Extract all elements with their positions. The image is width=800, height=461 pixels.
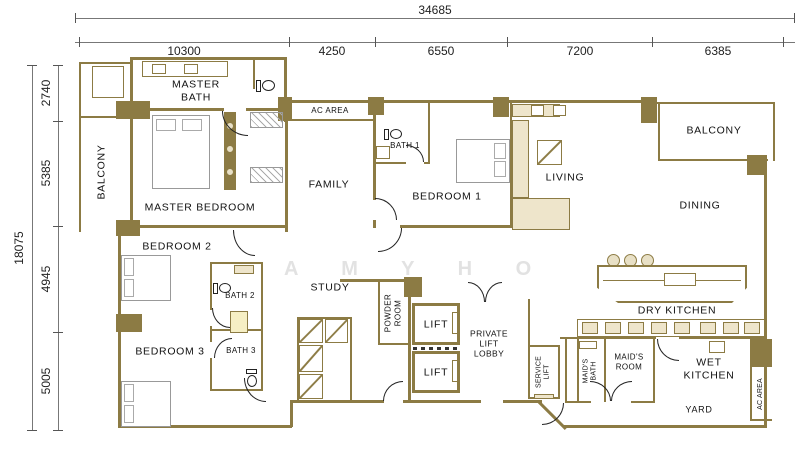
dim-tick (289, 37, 290, 47)
room-label-dry-kitchen: DRY KITCHEN (638, 305, 717, 318)
dim-top-total: 34685 (418, 3, 451, 17)
wall-segment (79, 62, 132, 64)
dim-tick (507, 37, 508, 47)
dim-tick (53, 121, 63, 122)
counter-appliance (582, 322, 598, 334)
dim-tick (652, 37, 653, 47)
room-label-ac-area-top: AC AREA (311, 106, 348, 116)
column-block (750, 339, 772, 367)
pillow (124, 405, 134, 423)
room-label-balcony-left: BALCONY (96, 144, 109, 199)
column-block (493, 97, 509, 117)
room-label-powder-room: POWDER ROOM (383, 294, 402, 332)
wall-segment (118, 225, 288, 228)
balcony-planter (92, 66, 124, 98)
closet-shelf (250, 167, 283, 183)
living-sofa (512, 198, 570, 230)
lift-lower-door (452, 360, 458, 382)
wall-segment (750, 419, 772, 421)
wall-segment (750, 367, 752, 421)
toilet-tank (384, 129, 389, 140)
wall-segment (210, 326, 212, 342)
lift-upper-door (452, 312, 458, 334)
wall-segment (428, 100, 430, 164)
toilet-tank (246, 369, 257, 374)
dim-tick (53, 332, 63, 333)
dim-top-seg-2: 6550 (428, 44, 455, 58)
door-arc-wet-kitchen (657, 339, 679, 361)
door-arc-bath2 (212, 308, 230, 328)
room-label-bath2: BATH 2 (225, 291, 255, 301)
wall-segment (655, 102, 775, 104)
dim-left-seg-0: 2740 (39, 80, 53, 107)
toilet-tank (256, 80, 261, 92)
wall-segment (528, 299, 530, 346)
counter-appliance (628, 322, 644, 334)
door-arc-bedroom2 (233, 230, 255, 256)
door-arc-bedroom3 (244, 378, 266, 402)
closet-shelf (250, 112, 283, 128)
dim-tick (53, 65, 63, 66)
toilet-tank (213, 283, 218, 294)
wardrobe-hanger (226, 168, 234, 176)
pillow (494, 161, 506, 177)
pillow (124, 279, 134, 297)
room-label-master-bedroom: MASTER BEDROOM (145, 202, 256, 215)
dim-tick (375, 37, 376, 47)
wall-segment (290, 400, 384, 403)
dim-top-seg-3: 7200 (567, 44, 594, 58)
dim-line-top-total (75, 18, 795, 19)
room-label-master-bath: MASTER BATH (172, 78, 220, 103)
sink-basin (376, 146, 390, 159)
dim-line-left-total (32, 65, 33, 431)
wall-segment (253, 57, 255, 89)
wall-segment (631, 401, 655, 403)
wall-segment (285, 119, 288, 232)
counter-appliance (723, 322, 739, 334)
room-label-service-lift: SERVICE LIFT (536, 356, 553, 388)
room-label-maids-room: MAID'S ROOM (614, 352, 643, 371)
dim-tick (27, 430, 37, 431)
pillow (156, 119, 176, 131)
toilet-bowl (262, 80, 275, 91)
dim-line-top-segments (75, 42, 795, 43)
room-label-bedroom1: BEDROOM 1 (412, 191, 481, 204)
room-label-ac-area-right: AC AREA (757, 378, 765, 410)
room-label-family: FAMILY (309, 179, 350, 192)
room-label-bath3: BATH 3 (226, 346, 256, 356)
wall-segment (130, 57, 286, 60)
dim-top-seg-0: 10300 (167, 44, 200, 58)
duct-shaft (230, 311, 248, 333)
room-label-lift-upper: LIFT (424, 319, 448, 332)
maids-bath-sink (579, 341, 597, 349)
wardrobe-hanger (226, 145, 234, 153)
wall-segment (408, 279, 411, 402)
wall-segment (400, 225, 512, 228)
wall-segment (210, 262, 263, 264)
wall-segment (565, 337, 567, 403)
room-label-private-lift-lobby: PRIVATE LIFT LOBBY (470, 329, 508, 360)
dim-top-seg-4: 6385 (705, 44, 732, 58)
toilet-bowl (390, 129, 402, 139)
hall-closet (299, 374, 323, 399)
wall-segment (378, 279, 380, 345)
floor-plan: 34685 10300 4250 6550 7200 6385 18075 27… (0, 0, 800, 461)
dim-tick (53, 430, 63, 431)
dim-left-seg-1: 5385 (39, 160, 53, 187)
room-label-maids-bath: MAID'S BATH (583, 359, 600, 384)
room-label-bedroom2: BEDROOM 2 (142, 241, 211, 254)
door-arc-lobby-left (468, 282, 485, 302)
wet-kitchen-sink (709, 341, 725, 353)
wall-segment (210, 262, 212, 310)
wall-segment (503, 400, 542, 403)
service-lift-sill (534, 394, 554, 399)
column-block (116, 220, 140, 236)
dim-line-left-segments (58, 65, 59, 431)
room-label-study: STUDY (310, 282, 349, 295)
column-block (116, 314, 142, 332)
wall-segment (658, 102, 660, 161)
room-label-dining: DINING (680, 200, 721, 213)
column-block (404, 277, 422, 297)
room-label-bath1: BATH 1 (390, 141, 420, 151)
hall-closet (299, 319, 323, 343)
dim-left-seg-3: 5005 (39, 368, 53, 395)
hall-closet (325, 319, 348, 343)
door-arc-bedroom1 (378, 228, 402, 252)
room-label-lift-lower: LIFT (424, 367, 448, 380)
wall-segment (773, 102, 775, 161)
island-hob (664, 273, 696, 286)
wall-segment (261, 262, 263, 391)
dim-tick (75, 13, 76, 23)
door-arc-family (375, 198, 397, 220)
wall-segment (350, 317, 352, 402)
room-label-bedroom3: BEDROOM 3 (135, 346, 204, 359)
wall-segment (378, 343, 410, 345)
wall-segment (210, 358, 212, 391)
room-label-living: LIVING (546, 172, 585, 185)
column-block (368, 97, 384, 115)
wall-segment (340, 279, 410, 282)
counter-appliance (700, 322, 716, 334)
room-label-balcony-right: BALCONY (686, 125, 741, 138)
living-armchair (531, 105, 544, 116)
door-arc-maids-left (590, 381, 611, 401)
pillow (182, 119, 202, 131)
pillow (124, 384, 134, 402)
counter-appliance (674, 322, 690, 334)
wall-segment (290, 400, 293, 427)
door-arc-lobby-right (485, 282, 502, 302)
wall-segment (288, 100, 655, 103)
wall-segment (653, 339, 655, 402)
wall-segment (560, 337, 656, 339)
wall-segment (403, 400, 481, 403)
door-arc-corridor (383, 381, 403, 401)
door-arc-maids-right (611, 381, 632, 401)
pillow (124, 258, 134, 276)
counter-appliance (651, 322, 667, 334)
dim-left-seg-2: 4945 (39, 266, 53, 293)
wall-segment (130, 57, 133, 231)
lift-lobby-threshold (413, 347, 459, 350)
dim-left-total: 18075 (12, 231, 26, 264)
dim-tick (27, 65, 37, 66)
column-block (747, 155, 767, 175)
counter-appliance (605, 322, 621, 334)
sink-basin (184, 64, 198, 74)
dim-top-seg-1: 4250 (319, 44, 346, 58)
pillow (494, 143, 506, 159)
counter-appliance (744, 322, 760, 334)
dim-tick (794, 13, 795, 23)
living-rug (537, 140, 562, 165)
dim-tick (53, 226, 63, 227)
dim-tick (79, 37, 80, 47)
hall-closet (299, 345, 323, 372)
column-block (641, 97, 657, 123)
bath2-counter (234, 265, 254, 274)
room-label-yard: YARD (685, 405, 712, 416)
wall-segment (373, 220, 376, 228)
sink-basin (152, 64, 166, 74)
wall-segment (79, 62, 81, 232)
wall-segment (288, 119, 373, 121)
dim-tick (783, 37, 784, 47)
room-label-wet-kitchen: WET KITCHEN (684, 356, 735, 381)
wall-segment (373, 162, 406, 164)
wall-segment (564, 425, 766, 428)
living-sofa (512, 120, 529, 198)
column-block (116, 101, 150, 119)
living-armchair (553, 105, 566, 116)
